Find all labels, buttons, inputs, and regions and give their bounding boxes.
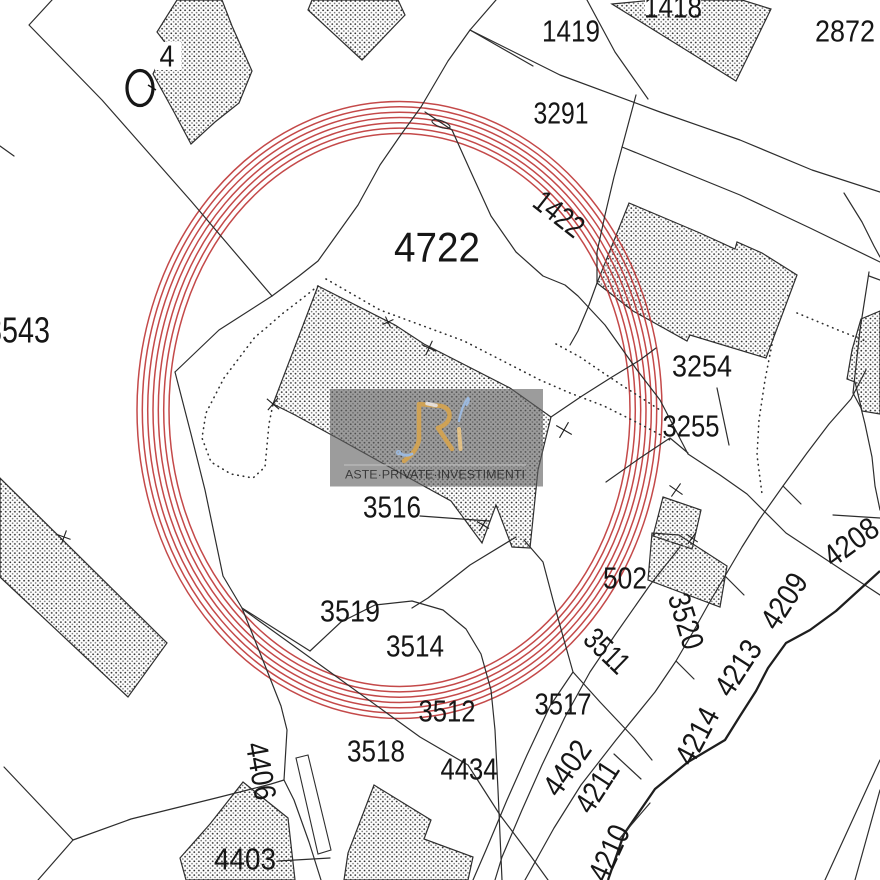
svg-text:2872: 2872	[815, 14, 875, 49]
svg-text:3519: 3519	[320, 594, 380, 629]
svg-text:3514: 3514	[386, 629, 444, 664]
svg-text:ASTE·PRIVATE·INVESTIMENTI: ASTE·PRIVATE·INVESTIMENTI	[345, 468, 525, 482]
svg-text:8543: 8543	[0, 310, 50, 351]
svg-text:4403: 4403	[214, 842, 276, 877]
svg-text:1419: 1419	[542, 14, 600, 49]
svg-text:4722: 4722	[394, 224, 480, 271]
svg-text:3518: 3518	[347, 734, 405, 769]
svg-text:3291: 3291	[534, 96, 589, 131]
svg-text:4: 4	[160, 39, 175, 74]
svg-text:3517: 3517	[535, 687, 592, 722]
svg-text:3512: 3512	[419, 694, 476, 729]
svg-text:3255: 3255	[663, 409, 720, 444]
svg-text:4434: 4434	[441, 752, 498, 787]
svg-text:3516: 3516	[363, 490, 421, 525]
svg-text:502: 502	[603, 561, 647, 596]
svg-text:3254: 3254	[672, 349, 732, 384]
svg-text:1418: 1418	[644, 0, 702, 25]
